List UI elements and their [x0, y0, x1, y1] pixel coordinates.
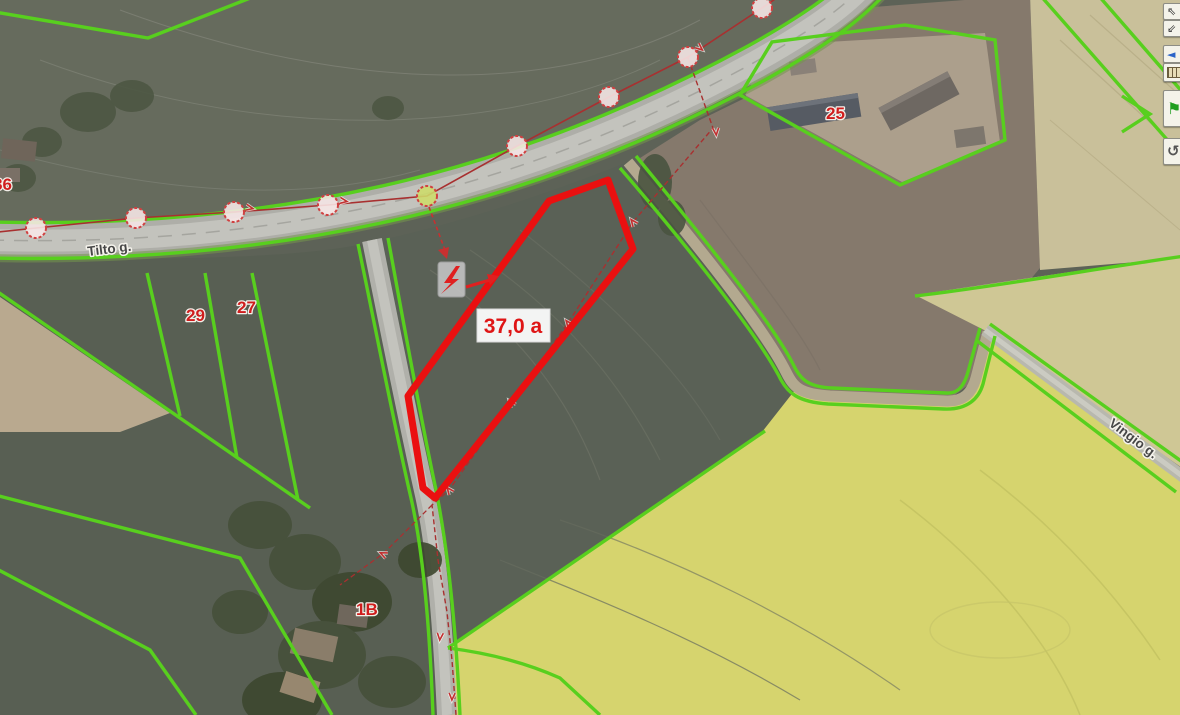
selected-pole-marker — [417, 186, 437, 206]
parcel-number-1b: 1B — [356, 600, 378, 619]
back-arrow-icon: ◄ — [1167, 49, 1175, 60]
pan-lower-button[interactable]: ⇙ — [1163, 20, 1180, 37]
parcel-number-29: 29 — [186, 306, 205, 325]
map-canvas[interactable]: 37,0 a Tilto g. Vingio g. 25 29 27 1B 86 — [0, 0, 1180, 715]
rotate-button[interactable]: ↺ — [1163, 138, 1180, 165]
map-toolbar: ⇖ ⇙ ◄ ⚑ ↺ — [1163, 0, 1180, 715]
parcel-number-27: 27 — [237, 298, 256, 317]
pan-upper-button[interactable]: ⇖ — [1163, 3, 1180, 20]
flag-button[interactable]: ⚑ — [1163, 90, 1180, 127]
parcel-number-25: 25 — [826, 104, 845, 123]
back-button[interactable]: ◄ — [1163, 45, 1180, 63]
pan-lower-arrow-icon: ⇙ — [1167, 23, 1176, 34]
flag-icon: ⚑ — [1167, 101, 1180, 117]
parcel-number-86: 86 — [0, 175, 12, 194]
measure-button[interactable] — [1163, 63, 1180, 82]
map-application: 37,0 a Tilto g. Vingio g. 25 29 27 1B 86… — [0, 0, 1180, 715]
area-label-text: 37,0 a — [484, 315, 543, 338]
rotate-icon: ↺ — [1167, 144, 1180, 159]
pan-upper-arrow-icon: ⇖ — [1167, 6, 1176, 17]
area-label: 37,0 a — [477, 309, 550, 342]
ruler-icon — [1167, 67, 1180, 78]
